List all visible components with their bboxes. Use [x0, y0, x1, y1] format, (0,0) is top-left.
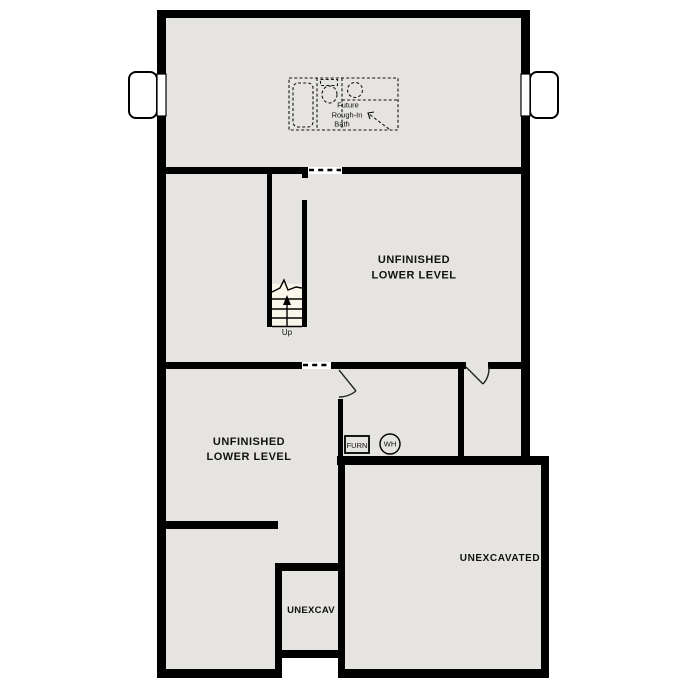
future-bath-label-2: Rough-In: [332, 111, 363, 120]
furnace-label: FURN: [347, 441, 368, 450]
lower-level-floor-plan: Up Future Rough-In Bath FURN WH UNFINISH…: [0, 0, 687, 687]
upper-room-floor: [166, 18, 521, 167]
right-window-assembly: [521, 72, 558, 118]
mech-room-right-wall: [458, 368, 464, 457]
divider1-right-segment: [342, 167, 521, 174]
unexcavated-large-label: UNEXCAVATED: [460, 553, 541, 564]
middle-room-label-line1: UNFINISHED: [378, 254, 450, 266]
unexcavated-right-wall: [541, 456, 549, 678]
right-window-well: [530, 72, 558, 118]
future-bath-label-3: Bath: [334, 120, 349, 129]
divider2-left-segment: [157, 362, 302, 369]
stub-wall: [157, 521, 278, 529]
left-window: [157, 74, 166, 116]
lower-left-floor-b: [166, 563, 275, 669]
stair-right-wall: [302, 200, 307, 327]
bottom-left-wall: [157, 669, 282, 678]
divider2-right-segment: [488, 362, 521, 369]
middle-room-floor: [166, 174, 521, 362]
divider2-mid-segment: [331, 362, 466, 369]
unexcavated-large-floor: [345, 465, 541, 669]
unexcavated-small-label: UNEXCAV: [287, 605, 335, 616]
unexcavated-top-wall: [337, 456, 549, 465]
unexcavated-bottom-wall: [338, 669, 549, 678]
left-window-assembly: [129, 72, 166, 118]
unexcav-small-bottom-wall: [275, 650, 345, 658]
future-bath-label-1: Future: [337, 101, 359, 110]
divider1-end-post: [302, 167, 308, 178]
right-window: [521, 74, 530, 116]
floor-plan-page: Up Future Rough-In Bath FURN WH UNFINISH…: [0, 0, 687, 687]
unexcav-small-left-wall: [275, 563, 282, 678]
lower-left-floor-a: [166, 456, 338, 563]
left-window-well: [129, 72, 157, 118]
middle-room-label-line2: LOWER LEVEL: [372, 270, 457, 282]
lower-left-room-label-line1: UNFINISHED: [213, 436, 285, 448]
mech-room-left-wall: [338, 399, 343, 465]
lower-left-room-label-line2: LOWER LEVEL: [207, 451, 292, 463]
unexcavated-left-wall: [338, 457, 345, 678]
unexcav-small-top-wall: [275, 563, 345, 571]
door2-threshold-floor: [466, 362, 488, 369]
stairs-up-label: Up: [282, 328, 293, 337]
divider1-left-segment: [157, 167, 302, 174]
water-heater-label: WH: [384, 440, 397, 449]
stair-left-wall: [267, 174, 272, 327]
top-wall: [157, 10, 530, 18]
